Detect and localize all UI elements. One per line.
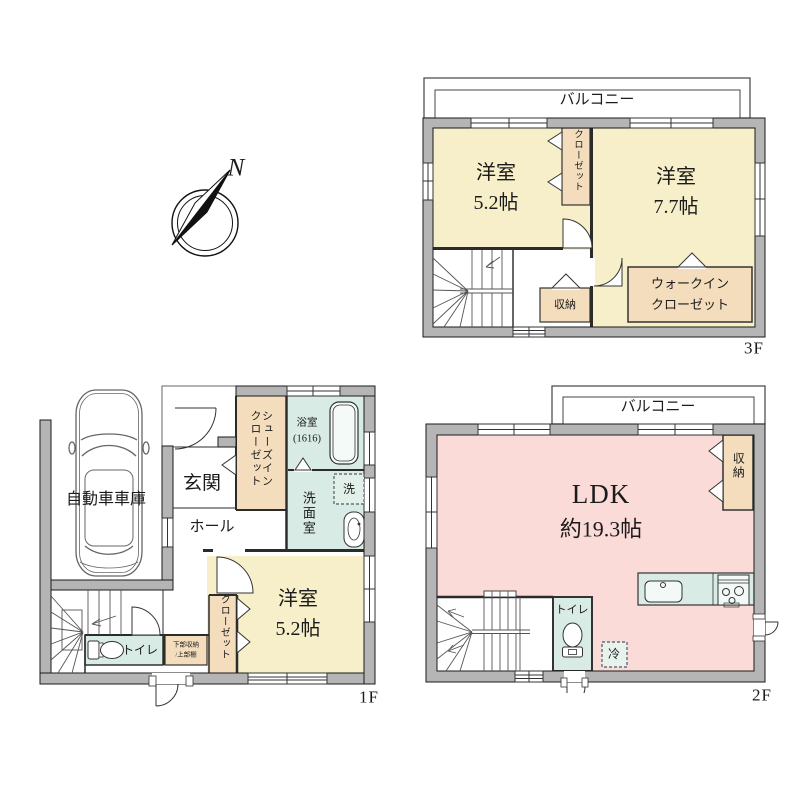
washer-label: 洗 bbox=[343, 480, 355, 498]
exterior-door-1f bbox=[149, 673, 193, 706]
storage-2f-label: 収納 bbox=[732, 452, 745, 492]
ldk-size-label: 約19.3帖 bbox=[560, 513, 643, 546]
hall-label: ホール bbox=[189, 516, 234, 539]
toilet-icon-2f bbox=[563, 623, 583, 657]
ldk-label: LDK bbox=[572, 474, 631, 515]
kitchen-counter bbox=[638, 573, 754, 607]
floor-2f-name: 2F bbox=[752, 682, 772, 708]
room-3f-large-label: 洋室 7.7帖 bbox=[654, 162, 699, 222]
floorplan-canvas: N bbox=[0, 0, 800, 800]
stove-icon bbox=[718, 575, 749, 607]
balcony-3f-label: バルコニー bbox=[560, 89, 635, 112]
floor-plan-1f-graphic bbox=[28, 378, 388, 708]
storage-3f-label: 収納 bbox=[554, 297, 576, 314]
toilet-2f-label: トイレ bbox=[556, 602, 589, 619]
compass-north-label: N bbox=[228, 149, 245, 187]
kitchen-sink-icon bbox=[645, 581, 682, 602]
bathroom-label: 浴室 (1616) bbox=[293, 415, 321, 447]
bathtub-icon bbox=[330, 402, 358, 464]
toilet-door-2f bbox=[561, 671, 588, 693]
toilet-1f-label: トイレ bbox=[122, 641, 158, 659]
room-3f-small-label: 洋室 5.2帖 bbox=[474, 158, 519, 218]
closet-3f-label: クローゼット bbox=[571, 129, 581, 203]
toilet-icon-1f bbox=[88, 641, 124, 659]
walkin-closet-label: ウォークイン クローゼット bbox=[651, 274, 729, 316]
fridge-label: 冷 bbox=[608, 645, 620, 663]
shoes-closet-label: シューズインクローゼット bbox=[248, 410, 271, 494]
closet-1f-label: クローゼット bbox=[218, 594, 229, 674]
balcony-2f-label: バルコニー bbox=[621, 396, 696, 419]
floor-plan-3f-graphic bbox=[420, 76, 780, 366]
floor-1f-name: 1F bbox=[359, 684, 379, 710]
floor-3f-name: 3F bbox=[744, 335, 764, 361]
storage-note-label: 下部収納 /上部棚 bbox=[173, 640, 199, 660]
room-1f-label: 洋室 5.2帖 bbox=[276, 584, 321, 644]
vanity-sink-icon bbox=[344, 512, 364, 547]
garage-label: 自動車車庫 bbox=[66, 488, 146, 512]
washroom-label: 洗面室 bbox=[301, 491, 315, 543]
compass-icon bbox=[160, 135, 270, 260]
entrance-label: 玄関 bbox=[183, 470, 221, 499]
